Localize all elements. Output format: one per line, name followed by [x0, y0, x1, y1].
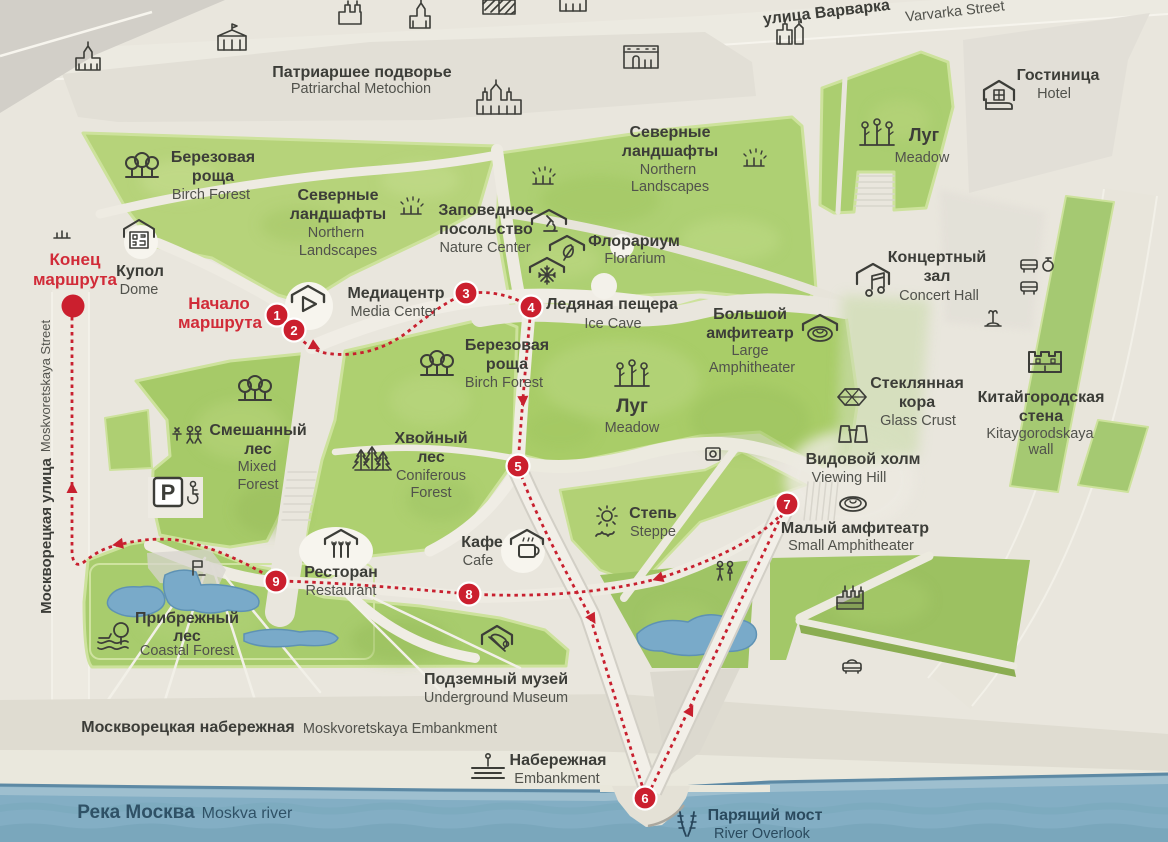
svg-text:Гостиница: Гостиница: [1017, 67, 1100, 84]
svg-text:Ресторан: Ресторан: [304, 564, 378, 581]
svg-text:Концертный: Концертный: [888, 249, 987, 266]
svg-text:Moskva river: Moskva river: [202, 805, 293, 822]
svg-text:Березовая: Березовая: [465, 337, 549, 354]
svg-text:7: 7: [783, 497, 790, 512]
svg-text:Northern: Northern: [308, 225, 364, 241]
svg-text:Парящий мост: Парящий мост: [708, 807, 823, 824]
svg-text:Restaurant: Restaurant: [306, 583, 377, 599]
svg-text:ландшафты: ландшафты: [622, 143, 718, 160]
svg-text:Купол: Купол: [116, 263, 164, 280]
svg-text:Видовой холм: Видовой холм: [806, 451, 921, 468]
svg-text:Подземный музей: Подземный музей: [424, 671, 568, 688]
svg-text:лес: лес: [244, 441, 272, 458]
svg-text:Хвойный: Хвойный: [394, 430, 467, 447]
svg-text:Birch Forest: Birch Forest: [465, 375, 543, 391]
svg-text:Ледяная пещера: Ледяная пещера: [546, 296, 678, 313]
svg-text:Embankment: Embankment: [514, 771, 599, 787]
svg-text:Media Center: Media Center: [350, 304, 437, 320]
svg-text:Nature Center: Nature Center: [439, 240, 530, 256]
svg-text:Forest: Forest: [237, 477, 278, 493]
svg-text:Медиацентр: Медиацентр: [347, 285, 444, 302]
svg-text:Meadow: Meadow: [895, 150, 950, 166]
svg-text:5: 5: [514, 459, 521, 474]
svg-text:Прибрежный: Прибрежный: [135, 610, 239, 627]
svg-text:Hotel: Hotel: [1037, 86, 1071, 102]
svg-text:Смешанный: Смешанный: [209, 422, 306, 439]
svg-text:Москворецкая набережная: Москворецкая набережная: [81, 719, 294, 736]
svg-text:Ice Cave: Ice Cave: [584, 316, 641, 332]
svg-text:Mixed: Mixed: [238, 459, 277, 475]
svg-text:Cafe: Cafe: [463, 553, 494, 569]
svg-text:Кафе: Кафе: [461, 534, 503, 551]
svg-text:Patriarchal Metochion: Patriarchal Metochion: [291, 81, 431, 97]
svg-text:Луг: Луг: [909, 125, 940, 145]
svg-text:Москворецкая улица: Москворецкая улица: [38, 458, 55, 614]
svg-text:Патриаршее подворье: Патриаршее подворье: [272, 64, 451, 81]
svg-text:Заповедное: Заповедное: [438, 202, 533, 219]
svg-text:Forest: Forest: [410, 485, 451, 501]
svg-text:Kitaygorodskaya: Kitaygorodskaya: [986, 426, 1094, 442]
svg-text:Большой: Большой: [713, 306, 787, 323]
svg-text:Steppe: Steppe: [630, 524, 676, 540]
svg-text:лес: лес: [417, 449, 445, 466]
svg-text:Начало: Начало: [188, 294, 250, 313]
svg-text:Конец: Конец: [50, 250, 101, 269]
svg-text:Concert Hall: Concert Hall: [899, 288, 979, 304]
svg-text:Florarium: Florarium: [604, 251, 665, 267]
svg-text:Флорариум: Флорариум: [588, 233, 680, 250]
svg-text:2: 2: [290, 323, 297, 338]
svg-text:посольство: посольство: [439, 221, 533, 238]
svg-text:Coastal Forest: Coastal Forest: [140, 643, 234, 659]
svg-text:ландшафты: ландшафты: [290, 206, 386, 223]
svg-text:8: 8: [465, 587, 472, 602]
svg-text:Березовая: Березовая: [171, 149, 255, 166]
svg-text:Underground Museum: Underground Museum: [424, 690, 568, 706]
svg-text:6: 6: [641, 791, 648, 806]
svg-text:маршрута: маршрута: [33, 270, 118, 289]
svg-text:Луг: Луг: [616, 396, 648, 417]
svg-text:Landscapes: Landscapes: [631, 179, 709, 195]
svg-text:роща: роща: [192, 168, 234, 185]
svg-text:Северные: Северные: [630, 124, 711, 141]
svg-text:Степь: Степь: [629, 505, 677, 522]
svg-text:wall: wall: [1028, 442, 1054, 458]
svg-text:Стеклянная: Стеклянная: [870, 375, 964, 392]
svg-text:Coniferous: Coniferous: [396, 468, 466, 484]
svg-text:кора: кора: [899, 394, 935, 411]
svg-text:Moskvoretskaya Street: Moskvoretskaya Street: [38, 320, 53, 453]
svg-text:Meadow: Meadow: [605, 420, 660, 436]
svg-text:Река Москва: Река Москва: [77, 802, 195, 823]
svg-text:3: 3: [462, 286, 469, 301]
svg-text:маршрута: маршрута: [178, 313, 263, 332]
svg-text:Moskvoretskaya Embankment: Moskvoretskaya Embankment: [303, 721, 497, 737]
svg-text:Northern: Northern: [640, 162, 696, 178]
svg-text:P: P: [161, 480, 176, 505]
svg-text:Dome: Dome: [120, 282, 159, 298]
svg-text:Viewing Hill: Viewing Hill: [812, 470, 887, 486]
svg-text:Китайгородская: Китайгородская: [978, 389, 1105, 406]
svg-text:Landscapes: Landscapes: [299, 243, 377, 259]
svg-text:роща: роща: [486, 356, 528, 373]
svg-text:Birch Forest: Birch Forest: [172, 187, 250, 203]
svg-text:Набережная: Набережная: [510, 752, 607, 769]
svg-text:Small Amphitheater: Small Amphitheater: [788, 538, 914, 554]
svg-text:9: 9: [272, 574, 279, 589]
svg-text:зал: зал: [924, 268, 951, 285]
svg-text:River Overlook: River Overlook: [714, 826, 811, 842]
svg-text:Северные: Северные: [298, 187, 379, 204]
svg-text:амфитеатр: амфитеатр: [706, 325, 794, 342]
svg-text:Amphitheater: Amphitheater: [709, 360, 795, 376]
svg-text:1: 1: [273, 308, 280, 323]
svg-text:Малый амфитеатр: Малый амфитеатр: [781, 520, 929, 537]
svg-text:4: 4: [527, 300, 535, 315]
svg-text:Large: Large: [731, 343, 768, 359]
svg-text:стена: стена: [1019, 408, 1063, 425]
svg-text:Glass Crust: Glass Crust: [880, 413, 956, 429]
